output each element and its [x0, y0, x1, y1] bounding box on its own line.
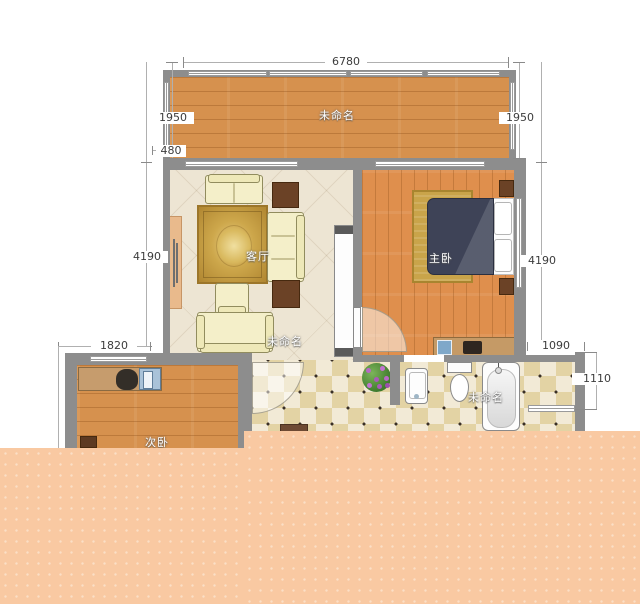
- nightstand-top: [499, 180, 514, 197]
- living-room-rug: [197, 205, 268, 284]
- loveseat-backrest: [208, 174, 260, 183]
- bed-pillow-top: [494, 202, 512, 235]
- dim-ext-second-left: [58, 346, 59, 448]
- loveseat-sofa: [205, 175, 263, 204]
- floor-plan-canvas: 未命名 客厅 未命名 主卧 次卧 未命名 6780 1950 1950 480 …: [0, 0, 640, 604]
- dim-line-left-height: [146, 62, 147, 346]
- dim-tick-1950r-bottom: [513, 158, 525, 159]
- fish-tank: [437, 340, 452, 355]
- loveseat-cushion-divider: [233, 183, 235, 203]
- dim-label-balcony-right: 1950: [499, 112, 541, 124]
- master-bedroom-label: 主卧: [424, 253, 458, 265]
- bed-pillow-bottom: [494, 239, 512, 272]
- living-window-sideboard: [168, 216, 182, 309]
- monitor-screen: [143, 371, 153, 389]
- dim-label-left-height: 4190: [126, 251, 168, 263]
- stool: [80, 436, 97, 448]
- armchair: [215, 283, 249, 314]
- balcony-window-3: [350, 71, 423, 76]
- dim-label-480: 480: [156, 145, 186, 157]
- peach-overlay-right: [244, 431, 640, 604]
- bathroom-window: [528, 405, 575, 412]
- computer-monitor: [139, 368, 161, 390]
- dim-tick-6780-left: [183, 57, 184, 68]
- dim-label-balcony-width: 6780: [325, 56, 367, 68]
- dim-label-right-height: 4190: [521, 255, 563, 267]
- washbasin: [405, 368, 428, 404]
- washbasin-drain: [414, 394, 419, 399]
- three-seat-sofa-bottom: [197, 312, 273, 352]
- tv-on-dresser: [463, 341, 482, 354]
- sideboard-handle-line-2: [176, 243, 178, 283]
- living-master-divider-wall: [353, 158, 362, 307]
- dim-tick-1950r-top: [513, 62, 525, 63]
- foyer-bath-divider-wall: [390, 362, 400, 405]
- second-bedroom-wall-left: [65, 353, 77, 448]
- dim-tick-1110-top: [575, 352, 597, 353]
- toilet-tank: [447, 362, 472, 373]
- dim-label-balcony-left: 1950: [152, 112, 194, 124]
- dim-label-bath-height: 1110: [572, 373, 622, 385]
- three-seat-sofa-right: [267, 212, 304, 282]
- bathroom-label: 未命名: [464, 392, 508, 404]
- divider-wall-stub: [353, 347, 362, 362]
- dim-tick-1950l-bottom: [166, 158, 178, 159]
- living-top-window: [185, 161, 298, 167]
- desk-chair: [116, 369, 138, 390]
- master-right-window: [516, 198, 522, 288]
- master-bedroom-door-leaf: [353, 307, 361, 348]
- dim-tick-1950l-top: [166, 62, 178, 63]
- bathtub-faucet-knob: [495, 367, 502, 374]
- master-top-window: [375, 161, 485, 167]
- master-dresser: [433, 337, 524, 356]
- dim-tick-480-left: [152, 146, 153, 155]
- tv-cabinet-cap-bottom: [335, 348, 353, 356]
- dim-tick-1820-right: [150, 342, 151, 351]
- sofa-right-divider-1: [271, 235, 295, 237]
- bedroom-bath-wall-bottom: [362, 355, 585, 362]
- bathroom-door-opening: [404, 355, 444, 362]
- dim-line-balcony-right: [519, 62, 520, 158]
- dim-tick-6780-right: [508, 57, 509, 68]
- dim-label-second-width: 1820: [91, 340, 137, 352]
- dim-tick-4190l-top: [141, 162, 152, 163]
- living-area-label: 未命名: [263, 336, 307, 348]
- dim-line-right-height: [541, 62, 542, 346]
- balcony-window-1: [188, 71, 267, 76]
- balcony-window-4: [427, 71, 500, 76]
- tv-cabinet: [334, 225, 354, 357]
- balcony-label: 未命名: [315, 110, 359, 122]
- sofa-right-backrest: [296, 215, 305, 279]
- dim-tick-1090-right: [584, 342, 585, 351]
- sofa-bottom-arm-left: [196, 315, 205, 349]
- dim-label-bath-width: 1090: [528, 340, 584, 352]
- side-table-bottom: [272, 280, 300, 308]
- balcony-window-2: [269, 71, 347, 76]
- potted-plant: [362, 363, 391, 392]
- dim-tick-4190r-top: [536, 162, 547, 163]
- sofa-bottom-backrest: [200, 343, 270, 353]
- bathroom-wall-right: [575, 353, 585, 431]
- nightstand-bottom: [499, 278, 514, 295]
- peach-overlay-left: [0, 448, 244, 604]
- side-table-top: [272, 182, 299, 208]
- living-room-label: 客厅: [238, 251, 278, 263]
- tv-cabinet-cap-top: [335, 226, 353, 234]
- dim-tick-1110-bottom: [575, 409, 597, 410]
- sideboard-handle-line-1: [173, 239, 175, 287]
- second-bedroom-wall-window: [90, 356, 147, 362]
